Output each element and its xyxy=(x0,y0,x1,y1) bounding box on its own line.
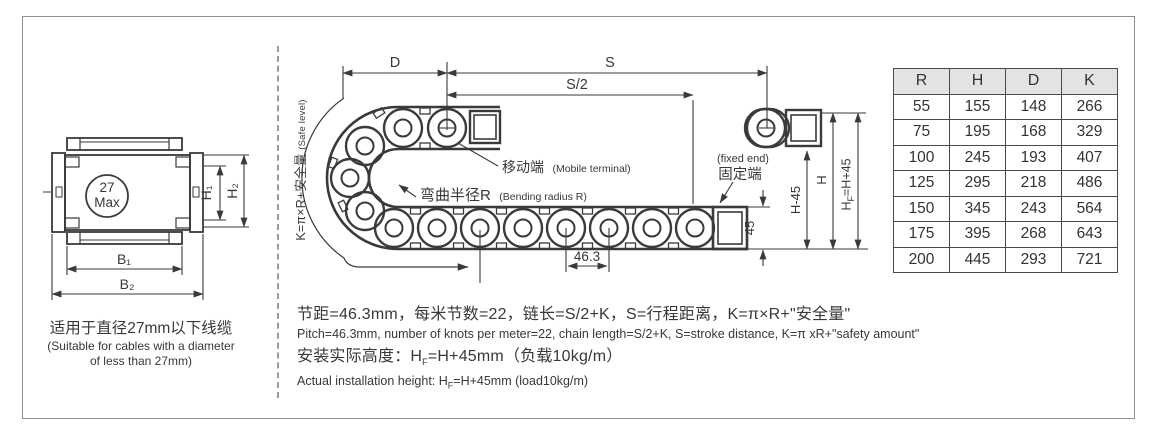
spec-table-cell: 125 xyxy=(894,171,950,197)
mobile-terminal-label-cn: 移动端 xyxy=(502,159,544,175)
chain-outer-edge xyxy=(327,107,747,249)
bending-radius-label-en: (Bending radius R) xyxy=(499,191,587,203)
tab xyxy=(176,218,190,228)
spec-table-cell: 268 xyxy=(1006,222,1062,248)
spec-table-cell: 721 xyxy=(1062,247,1118,273)
formula-notes: 节距=46.3mm，每米节数=22，链长=S/2+K，S=行程距离，K=π×R+… xyxy=(297,304,1017,398)
table-row: 175395268643 xyxy=(894,222,1118,248)
chain-link-circle xyxy=(504,209,542,247)
safe-level-formula: K=π×R+安全量 xyxy=(294,153,308,240)
cable-diameter-max: Max xyxy=(94,195,120,210)
chain-link-pin xyxy=(644,220,661,237)
table-row: 200445293721 xyxy=(894,247,1118,273)
dim-h-label: H xyxy=(814,175,829,184)
spec-table-cell: 150 xyxy=(894,196,950,222)
dim-b2-label: B₂ xyxy=(120,276,135,292)
dim-hf-label: HF=H+45 xyxy=(840,129,855,241)
hinge-tab xyxy=(669,208,679,214)
spec-table-cell: 155 xyxy=(950,94,1006,120)
chain-link-circle xyxy=(633,209,671,247)
chain-link-pin xyxy=(687,220,704,237)
spec-table-cell: 243 xyxy=(1006,196,1062,222)
chain-links xyxy=(331,109,714,247)
top-slat xyxy=(67,138,182,150)
notch xyxy=(56,187,62,197)
left-plate xyxy=(52,153,65,232)
height-formula-cn: 安装实际高度：HF=H+45mm（负载10kg/m） xyxy=(297,346,1017,373)
hinge-tab xyxy=(497,208,507,214)
tab xyxy=(65,218,79,228)
spec-table-cell: 200 xyxy=(894,247,950,273)
chain-link-pin xyxy=(357,203,374,220)
fixed-end-label-en: (fixed end) xyxy=(717,153,769,165)
spec-table-cell: 445 xyxy=(950,247,1006,273)
spec-table-cell: 218 xyxy=(1006,171,1062,197)
dim-h45-label: H-45 xyxy=(788,186,803,214)
elevated-link-bracket-inner xyxy=(791,115,816,141)
chain-link-circle xyxy=(384,109,422,147)
hinge-tab xyxy=(454,208,464,214)
dim-d-label: D xyxy=(390,55,400,71)
hinge-tab xyxy=(338,200,348,212)
table-row: 100245193407 xyxy=(894,145,1118,171)
spec-table-cell: 345 xyxy=(950,196,1006,222)
cross-section-dimensions xyxy=(52,155,249,300)
dim-h1-label: H₁ xyxy=(198,185,214,200)
hinge-tab xyxy=(411,208,421,214)
chain-link-circle xyxy=(676,209,714,247)
chain-link-circle xyxy=(418,209,456,247)
spec-table-cell: 643 xyxy=(1062,222,1118,248)
spec-table-cell: 100 xyxy=(894,145,950,171)
spec-table-cell: 55 xyxy=(894,94,950,120)
chain-link-pin xyxy=(395,120,412,137)
mobile-terminal-label: 移动端 (Mobile terminal) xyxy=(502,159,631,176)
bottom-slat xyxy=(67,232,182,244)
spec-table-header: K xyxy=(1062,69,1118,95)
spec-table-cell: 193 xyxy=(1006,145,1062,171)
bending-radius-label: 弯曲半径R (Bending radius R) xyxy=(420,187,587,204)
table-row: 150345243564 xyxy=(894,196,1118,222)
fixed-end-leader xyxy=(720,182,733,203)
caption-english-line1: (Suitable for cables with a diameter xyxy=(30,339,252,354)
spec-table-cell: 486 xyxy=(1062,171,1118,197)
chain-link-pin xyxy=(386,220,403,237)
spec-table-header-row: RHDK xyxy=(894,69,1118,95)
caption-chinese: 适用于直径27mm以下线缆 xyxy=(30,319,252,339)
chain-link-circle xyxy=(346,192,384,230)
chain-link-circle xyxy=(375,209,413,247)
spec-table-cell: 75 xyxy=(894,120,950,146)
dim-h2-label: H₂ xyxy=(224,183,240,199)
dim-b1-label: B₁ xyxy=(117,251,131,267)
table-row: 125295218486 xyxy=(894,171,1118,197)
spec-table-header: R xyxy=(894,69,950,95)
chain-link-pin xyxy=(342,170,359,187)
spec-table-cell: 148 xyxy=(1006,94,1062,120)
hinge-tab xyxy=(626,208,636,214)
spec-table-cell: 175 xyxy=(894,222,950,248)
spec-table-cell: 195 xyxy=(950,120,1006,146)
spec-table: RHDK 55155148266751951683291002451934071… xyxy=(893,68,1118,273)
spec-table-header: D xyxy=(1006,69,1062,95)
tab xyxy=(65,157,79,167)
chain-link-pin xyxy=(429,220,446,237)
spec-table-cell: 407 xyxy=(1062,145,1118,171)
spec-table-cell: 168 xyxy=(1006,120,1062,146)
bending-radius-label-cn: 弯曲半径R xyxy=(420,187,491,204)
spec-table-cell: 293 xyxy=(1006,247,1062,273)
mobile-terminal-label-en: (Mobile terminal) xyxy=(552,163,630,175)
fixed-end-label-cn: 固定端 xyxy=(718,166,762,183)
spec-table-cell: 329 xyxy=(1062,120,1118,146)
table-row: 55155148266 xyxy=(894,94,1118,120)
spec-table-cell: 395 xyxy=(950,222,1006,248)
height-formula-en: Actual installation height: HF=H+45mm (l… xyxy=(297,373,1017,395)
cross-section-drawing xyxy=(43,138,203,244)
chain-link-pin xyxy=(357,138,374,155)
caption-english-line2: of less than 27mm) xyxy=(30,354,252,369)
spec-table-cell: 245 xyxy=(950,145,1006,171)
spec-table-cell: 564 xyxy=(1062,196,1118,222)
hinge-tab xyxy=(420,108,430,114)
cable-suitability-caption: 适用于直径27mm以下线缆 (Suitable for cables with … xyxy=(30,319,252,369)
spec-table-cell: 266 xyxy=(1062,94,1118,120)
dim-pitch-label: 46.3 xyxy=(574,249,600,264)
cable-diameter-value: 27 xyxy=(99,180,114,195)
dim-45-label: 45 xyxy=(742,221,757,235)
pitch-formula-en: Pitch=46.3mm, number of knots per meter=… xyxy=(297,326,1017,343)
pitch-formula-cn: 节距=46.3mm，每米节数=22，链长=S/2+K，S=行程距离，K=π×R+… xyxy=(297,304,1017,326)
dim-s-half-label: S/2 xyxy=(566,77,588,93)
mobile-terminal-bracket-inner xyxy=(474,115,496,139)
spec-table-header: H xyxy=(950,69,1006,95)
tab xyxy=(176,157,190,167)
dim-s-label: S xyxy=(605,55,615,71)
hinge-tab xyxy=(540,208,550,214)
fixed-end-bracket-inner xyxy=(718,212,742,244)
hinge-tab xyxy=(583,208,593,214)
mobile-terminal-leader xyxy=(458,143,498,166)
bending-radius-leader xyxy=(399,185,416,197)
spec-table-cell: 295 xyxy=(950,171,1006,197)
chain-link-pin xyxy=(515,220,532,237)
safe-level-note: (Safe level) xyxy=(297,99,308,149)
safe-level-vertical-label: K=π×R+安全量 (Safe level) xyxy=(290,55,308,285)
table-row: 75195168329 xyxy=(894,120,1118,146)
cable-chain-spec-sheet: 27 Max H₁ H₂ B₁ B₂ xyxy=(0,0,1160,433)
